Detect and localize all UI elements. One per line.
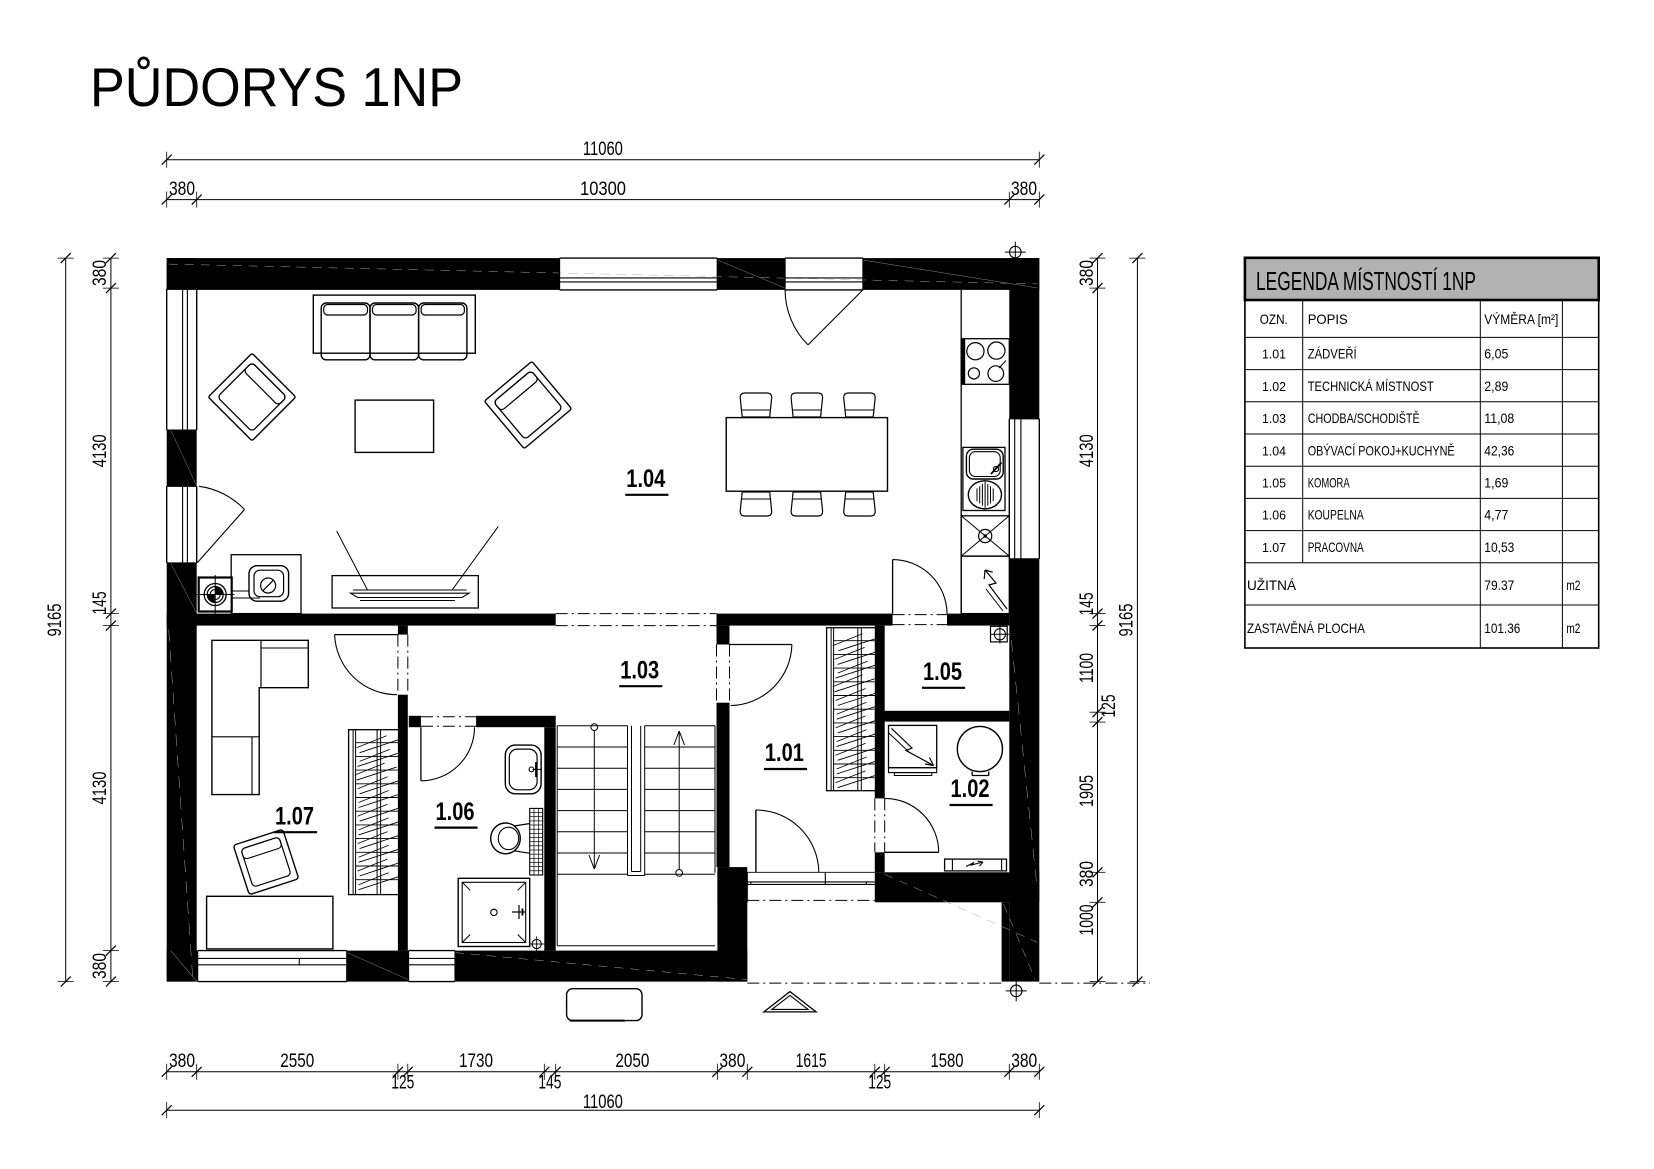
svg-text:1.04: 1.04 [1262,443,1286,458]
svg-text:9165: 9165 [45,604,66,637]
svg-text:TECHNICKÁ MÍSTNOST: TECHNICKÁ MÍSTNOST [1308,378,1434,394]
svg-text:1.07: 1.07 [275,802,314,830]
svg-text:2050: 2050 [615,1051,649,1072]
svg-text:1.02: 1.02 [1262,379,1286,394]
svg-text:OBÝVACÍ POKOJ+KUCHYNĚ: OBÝVACÍ POKOJ+KUCHYNĚ [1308,442,1455,458]
svg-text:380: 380 [1011,1051,1037,1072]
svg-text:125: 125 [868,1072,891,1093]
svg-text:1000: 1000 [1077,905,1098,936]
svg-text:1.07: 1.07 [1262,540,1286,555]
svg-text:4130: 4130 [1077,434,1098,467]
svg-text:1615: 1615 [796,1051,827,1072]
svg-text:380: 380 [169,1051,195,1072]
svg-text:OZN.: OZN. [1260,311,1288,327]
svg-text:10300: 10300 [580,179,626,200]
svg-text:380: 380 [719,1051,745,1072]
svg-text:380: 380 [90,953,111,979]
svg-text:380: 380 [90,260,111,286]
svg-text:PŮDORYS 1NP: PŮDORYS 1NP [90,55,463,118]
svg-text:KOMORA: KOMORA [1308,475,1350,491]
svg-text:11,08: 11,08 [1484,410,1514,426]
svg-text:10,53: 10,53 [1484,539,1514,555]
svg-text:1,69: 1,69 [1484,475,1508,491]
svg-text:ZASTAVĚNÁ PLOCHA: ZASTAVĚNÁ PLOCHA [1247,620,1366,636]
svg-text:2550: 2550 [280,1051,314,1072]
svg-text:4130: 4130 [90,434,111,467]
svg-text:145: 145 [90,592,111,615]
svg-text:1.04: 1.04 [626,465,665,493]
svg-text:11060: 11060 [583,139,623,160]
svg-text:380: 380 [1011,179,1037,200]
svg-text:4130: 4130 [90,772,111,805]
svg-text:ZÁDVEŘÍ: ZÁDVEŘÍ [1308,346,1357,362]
svg-text:KOUPELNA: KOUPELNA [1308,507,1364,523]
svg-text:1580: 1580 [931,1051,964,1072]
svg-text:125: 125 [1099,695,1120,718]
svg-text:CHODBA/SCHODIŠTĚ: CHODBA/SCHODIŠTĚ [1308,410,1420,426]
svg-text:LEGENDA MÍSTNOSTÍ 1NP: LEGENDA MÍSTNOSTÍ 1NP [1256,266,1476,296]
svg-text:42,36: 42,36 [1484,442,1514,458]
svg-text:1.05: 1.05 [1262,476,1286,491]
svg-text:125: 125 [391,1072,414,1093]
svg-text:1.05: 1.05 [923,658,962,686]
svg-text:1.01: 1.01 [765,739,804,767]
svg-text:11060: 11060 [583,1092,623,1113]
svg-text:UŽITNÁ: UŽITNÁ [1247,577,1297,593]
svg-text:9165: 9165 [1117,604,1138,637]
svg-text:2,89: 2,89 [1484,378,1508,394]
svg-text:380: 380 [1077,260,1098,286]
svg-text:1.01: 1.01 [1262,347,1286,362]
svg-text:1.06: 1.06 [436,798,475,826]
svg-text:m2: m2 [1566,577,1580,593]
svg-text:POPIS: POPIS [1308,311,1348,327]
svg-text:79.37: 79.37 [1484,577,1514,593]
svg-text:380: 380 [1077,861,1098,887]
svg-text:4,77: 4,77 [1484,507,1508,523]
svg-text:1.03: 1.03 [1262,411,1286,426]
svg-text:6,05: 6,05 [1484,346,1508,362]
svg-text:m2: m2 [1566,620,1580,636]
svg-text:145: 145 [1077,593,1098,616]
svg-text:PRACOVNA: PRACOVNA [1308,539,1364,555]
svg-text:145: 145 [538,1072,561,1093]
svg-text:1.02: 1.02 [951,775,990,803]
svg-text:1100: 1100 [1077,653,1098,683]
svg-text:1730: 1730 [459,1051,493,1072]
svg-text:VÝMĚRA [m²]: VÝMĚRA [m²] [1484,311,1558,327]
svg-text:1.03: 1.03 [620,656,659,684]
svg-text:1905: 1905 [1077,775,1098,807]
svg-text:101.36: 101.36 [1484,620,1520,636]
svg-text:1.06: 1.06 [1262,508,1286,523]
svg-text:380: 380 [169,179,195,200]
